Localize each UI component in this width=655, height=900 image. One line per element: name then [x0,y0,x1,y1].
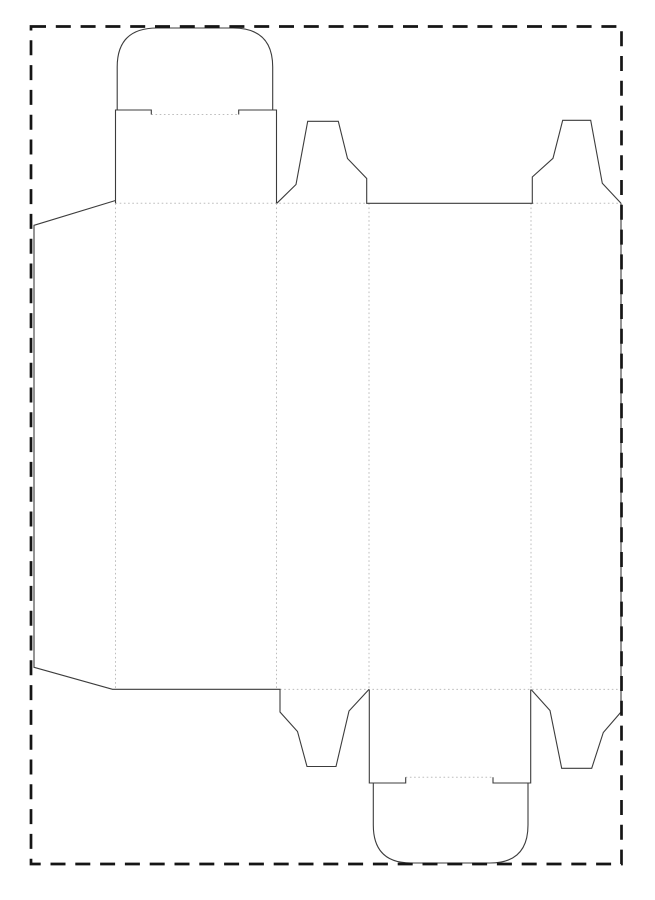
sheet-background [0,0,655,900]
dieline-sheet [0,0,655,900]
box-dieline-diagram [0,0,655,900]
